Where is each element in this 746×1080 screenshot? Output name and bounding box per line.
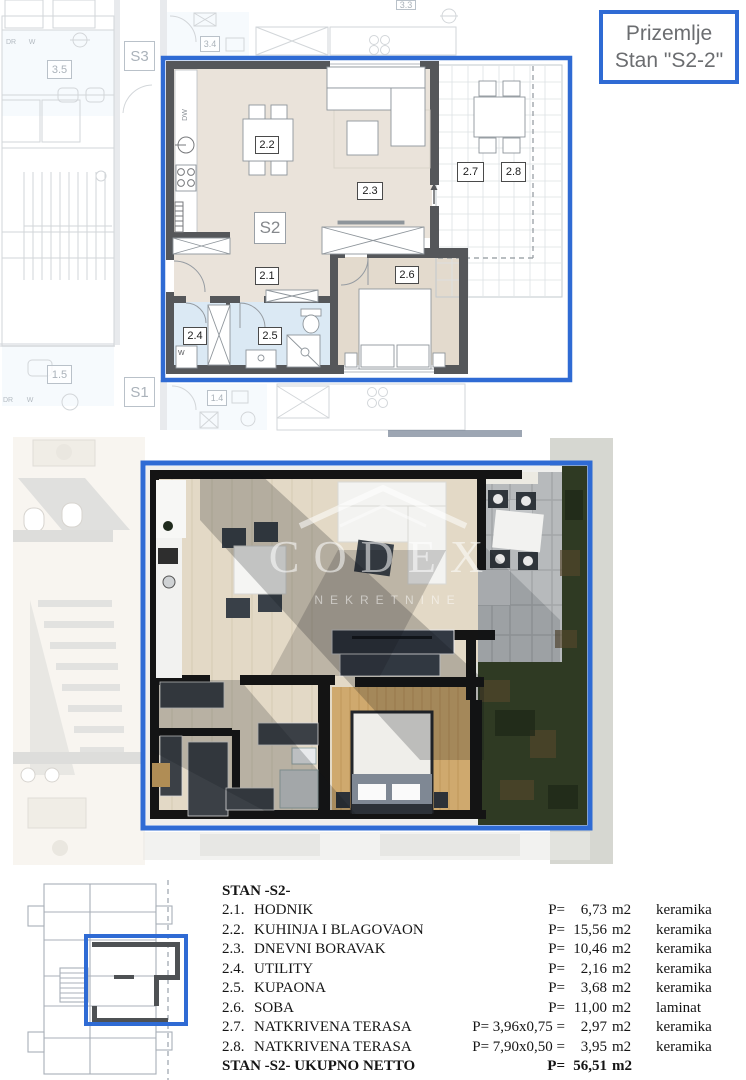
faded-render-context [13, 437, 145, 865]
row-formula: P= [423, 999, 565, 1019]
row-formula: P= 7,90x0,50 = [423, 1038, 565, 1058]
plan-title-box: Prizemlje Stan "S2-2" [599, 10, 739, 84]
row-num: 2.1. [222, 901, 254, 921]
row-material: keramika [642, 979, 736, 999]
row-name: HODNIK [254, 901, 423, 921]
table-total-label: STAN -S2- UKUPNO NETTO [222, 1057, 423, 1077]
context-label-w-bottom: W [24, 395, 36, 405]
row-num: 2.2. [222, 921, 254, 941]
row-name: KUHINJA I BLAGOVAONA [254, 921, 423, 941]
row-num: 2.5. [222, 979, 254, 999]
row-unit: m2 [607, 940, 642, 960]
row-material: keramika [642, 1038, 736, 1058]
row-unit: m2 [607, 921, 642, 941]
row-num: 2.6. [222, 999, 254, 1019]
row-formula: P= [423, 901, 565, 921]
watermark-text-nekretnine: NEKRETNINE [314, 593, 461, 607]
row-unit: m2 [607, 960, 642, 980]
render-3d: CODEX NEKRETNINE [0, 430, 746, 880]
row-formula: P= [423, 979, 565, 999]
washer-label: W [178, 350, 185, 357]
context-label-1-5: 1.5 [47, 365, 72, 384]
row-name: NATKRIVENA TERASA [254, 1018, 423, 1038]
watermark-text-codex: CODEX [269, 531, 497, 582]
table-row: 2.8. NATKRIVENA TERASA P= 7,90x0,50 = 3,… [222, 1038, 736, 1058]
table-row: 2.7. NATKRIVENA TERASA P= 3,96x0,75 = 2,… [222, 1018, 736, 1038]
row-formula: P= 3,96x0,75 = [423, 1018, 565, 1038]
room-label-2-5: 2.5 [258, 327, 282, 345]
table-row: 2.4. UTILITY P= 2,16 m2 keramika [222, 960, 736, 980]
context-label-3-3: 3.3 [396, 0, 416, 10]
room-label-2-4: 2.4 [183, 327, 207, 345]
row-material: laminat [642, 999, 736, 1019]
table-row: 2.2. KUHINJA I BLAGOVAONA P= 15,56 m2 ke… [222, 921, 736, 941]
row-name: DNEVNI BORAVAK [254, 940, 423, 960]
context-label-s3: S3 [124, 41, 155, 71]
context-label-s1: S1 [124, 377, 155, 407]
row-unit: m2 [607, 901, 642, 921]
row-formula: P= [423, 960, 565, 980]
row-area: 10,46 [565, 940, 607, 960]
row-name: NATKRIVENA TERASA [254, 1038, 423, 1058]
location-key-diagram [26, 880, 226, 1080]
row-material: keramika [642, 921, 736, 941]
row-num: 2.8. [222, 1038, 254, 1058]
table-row: 2.1. HODNIK P= 6,73 m2 keramika [222, 901, 736, 921]
room-label-2-1: 2.1 [255, 267, 279, 285]
context-label-dr-bottom: DR [0, 395, 16, 405]
row-material: keramika [642, 960, 736, 980]
context-label-dr-top: DR [3, 37, 19, 47]
room-label-2-3: 2.3 [357, 182, 383, 200]
row-formula: P= [423, 940, 565, 960]
area-table: STAN -S2- 2.1. HODNIK P= 6,73 m2 keramik… [222, 881, 736, 1077]
unit-label-s2: S2 [254, 212, 286, 244]
row-area: 3,95 [565, 1038, 607, 1058]
room-label-2-7: 2.7 [457, 162, 484, 182]
row-name: UTILITY [254, 960, 423, 980]
row-unit: m2 [607, 999, 642, 1019]
row-material: keramika [642, 1018, 736, 1038]
dishwasher-label: DW [173, 104, 197, 126]
table-total-formula: P= [423, 1057, 565, 1077]
table-total-area: 56,51 [565, 1057, 607, 1077]
row-name: KUPAONA [254, 979, 423, 999]
row-name: SOBA [254, 999, 423, 1019]
room-label-2-8: 2.8 [501, 162, 526, 182]
row-unit: m2 [607, 1038, 642, 1058]
row-area: 6,73 [565, 901, 607, 921]
room-label-2-2: 2.2 [255, 136, 279, 154]
table-total-unit: m2 [607, 1057, 642, 1077]
row-num: 2.4. [222, 960, 254, 980]
row-area: 2,16 [565, 960, 607, 980]
row-area: 3,68 [565, 979, 607, 999]
unit-s2-plan [166, 61, 562, 374]
plan-title-line2: Stan "S2-2" [615, 47, 723, 74]
row-unit: m2 [607, 1018, 642, 1038]
row-formula: P= [423, 921, 565, 941]
table-row: 2.6. SOBA P= 11,00 m2 laminat [222, 999, 736, 1019]
plan-title-line1: Prizemlje [626, 20, 712, 47]
table-row: 2.5. KUPAONA P= 3,68 m2 keramika [222, 979, 736, 999]
row-num: 2.3. [222, 940, 254, 960]
table-row: 2.3. DNEVNI BORAVAK P= 10,46 m2 keramika [222, 940, 736, 960]
row-unit: m2 [607, 979, 642, 999]
row-area: 11,00 [565, 999, 607, 1019]
row-material: keramika [642, 901, 736, 921]
row-area: 15,56 [565, 921, 607, 941]
context-label-w-top: W [26, 37, 38, 47]
brochure-page: 2.2 2.3 2.1 2.6 2.4 2.5 2.7 2.8 S2 DW W … [0, 0, 746, 1080]
row-area: 2,97 [565, 1018, 607, 1038]
row-material: keramika [642, 940, 736, 960]
room-label-2-6: 2.6 [395, 266, 419, 284]
context-label-3-4: 3.4 [200, 36, 220, 52]
context-label-1-4: 1.4 [207, 390, 227, 406]
table-footer-row: STAN -S2- UKUPNO NETTO P= 56,51 m2 [222, 1057, 736, 1077]
row-num: 2.7. [222, 1018, 254, 1038]
table-header: STAN -S2- [222, 881, 290, 901]
context-label-3-5: 3.5 [47, 60, 72, 79]
